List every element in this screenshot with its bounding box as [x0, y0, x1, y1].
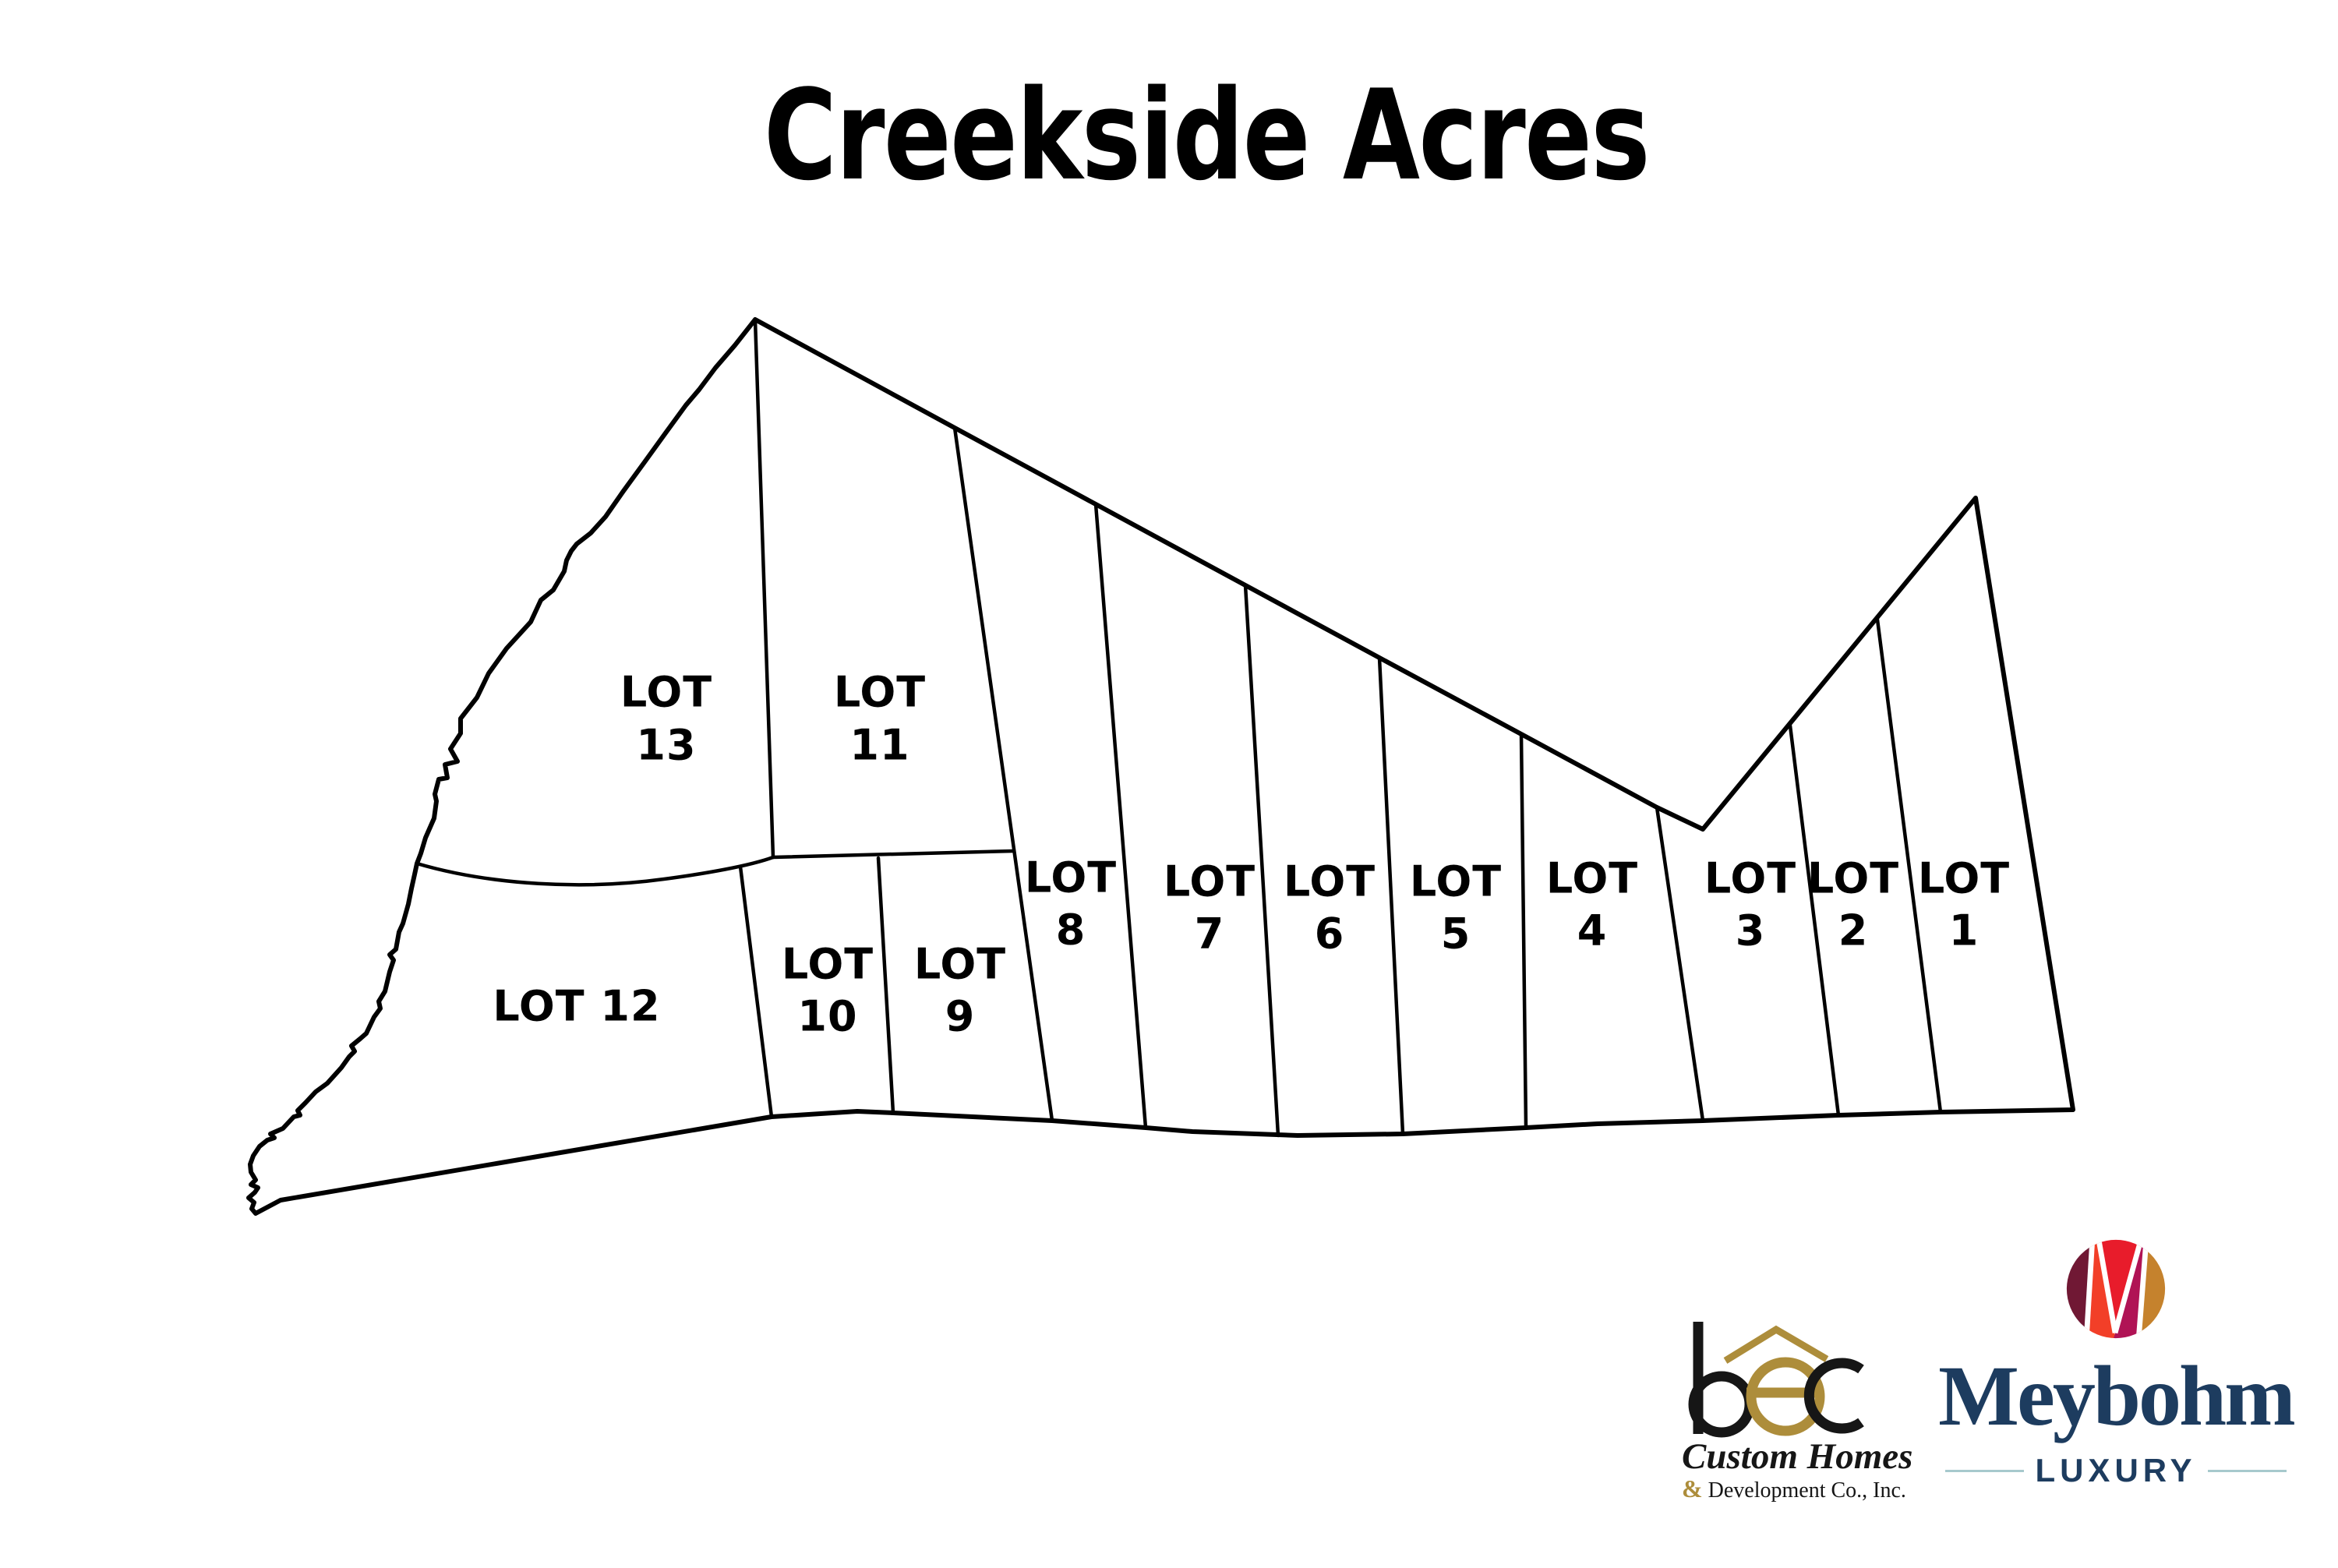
svg-text:LOT: LOT [834, 668, 926, 717]
bec-monogram-icon [1684, 1317, 1879, 1442]
svg-text:6: 6 [1315, 909, 1345, 959]
svg-text:LOT: LOT [914, 940, 1006, 989]
lot-label-7: LOT7 [1164, 857, 1256, 959]
lot-label-13: LOT13 [620, 668, 712, 770]
custom-homes-text: Custom Homes [1682, 1436, 1881, 1478]
svg-text:8: 8 [1056, 906, 1086, 955]
svg-text:11: 11 [849, 721, 909, 770]
meybohm-name: Meybohm [1931, 1358, 2301, 1435]
divider-lot4-lot3 [1657, 807, 1703, 1121]
svg-text:LOT: LOT [1918, 854, 2010, 903]
divider-lot6-lot5 [1379, 658, 1403, 1134]
plat-page: Creekside Acres LOT13LOT11LOT 12LOT10LOT… [0, 0, 2338, 1568]
bec-roof-icon [1725, 1330, 1827, 1361]
lot-label-11: LOT11 [834, 668, 926, 770]
divider-lot3-lot2 [1790, 726, 1838, 1115]
svg-text:LOT: LOT [1410, 857, 1502, 906]
svg-text:7: 7 [1195, 909, 1225, 959]
boundary-lot12-lot13 [417, 857, 773, 885]
divider-lot5-lot4 [1521, 734, 1526, 1128]
svg-text:LOT 12: LOT 12 [493, 982, 660, 1031]
svg-text:1: 1 [1949, 906, 1980, 955]
meybohm-m-icon [2064, 1238, 2167, 1340]
lot-label-9: LOT9 [914, 940, 1006, 1041]
svg-text:9: 9 [945, 992, 976, 1041]
luxury-line-left [1945, 1470, 2024, 1472]
svg-text:5: 5 [1441, 909, 1471, 959]
ampersand: & [1682, 1474, 1703, 1503]
luxury-line-right [2208, 1470, 2287, 1472]
boundary-lot11-lots10-9 [773, 851, 1013, 857]
luxury-label: LUXURY [2035, 1452, 2196, 1489]
dev-co-label: Development Co., Inc. [1708, 1478, 1906, 1503]
dev-co-text: &Development Co., Inc. [1682, 1474, 1881, 1503]
bec-letter-b [1693, 1322, 1750, 1434]
divider-lot8-lot7 [1096, 504, 1146, 1128]
svg-text:LOT: LOT [1704, 854, 1796, 903]
luxury-row: LUXURY [1931, 1452, 2301, 1489]
svg-text:2: 2 [1838, 906, 1869, 955]
svg-text:10: 10 [797, 992, 857, 1041]
lot-label-1: LOT1 [1918, 854, 2010, 955]
lot-label-3: LOT3 [1704, 854, 1796, 955]
svg-text:LOT: LOT [1284, 857, 1376, 906]
svg-text:3: 3 [1736, 906, 1766, 955]
lot-label-5: LOT5 [1410, 857, 1502, 959]
lot-label-12: LOT 12 [493, 982, 660, 1031]
lot-label-6: LOT6 [1284, 857, 1376, 959]
lot-label-4: LOT4 [1546, 854, 1638, 955]
meybohm-logo: Meybohm LUXURY [1931, 1238, 2301, 1489]
svg-text:LOT: LOT [1164, 857, 1256, 906]
svg-text:LOT: LOT [1807, 854, 1899, 903]
lot10-west-edge [740, 867, 772, 1117]
divider-lot13-lot11 [755, 320, 773, 857]
svg-text:LOT: LOT [782, 940, 874, 989]
lot-label-8: LOT8 [1025, 853, 1117, 955]
divider-lot10-lot9 [878, 858, 893, 1113]
lot-label-10: LOT10 [782, 940, 874, 1041]
svg-text:4: 4 [1577, 906, 1608, 955]
svg-text:13: 13 [636, 721, 696, 770]
svg-text:LOT: LOT [620, 668, 712, 717]
lot-label-2: LOT2 [1807, 854, 1899, 955]
parcel-outline [249, 320, 2073, 1213]
svg-text:LOT: LOT [1546, 854, 1638, 903]
svg-text:LOT: LOT [1025, 853, 1117, 902]
bec-logo: Custom Homes &Development Co., Inc. [1682, 1317, 1881, 1503]
